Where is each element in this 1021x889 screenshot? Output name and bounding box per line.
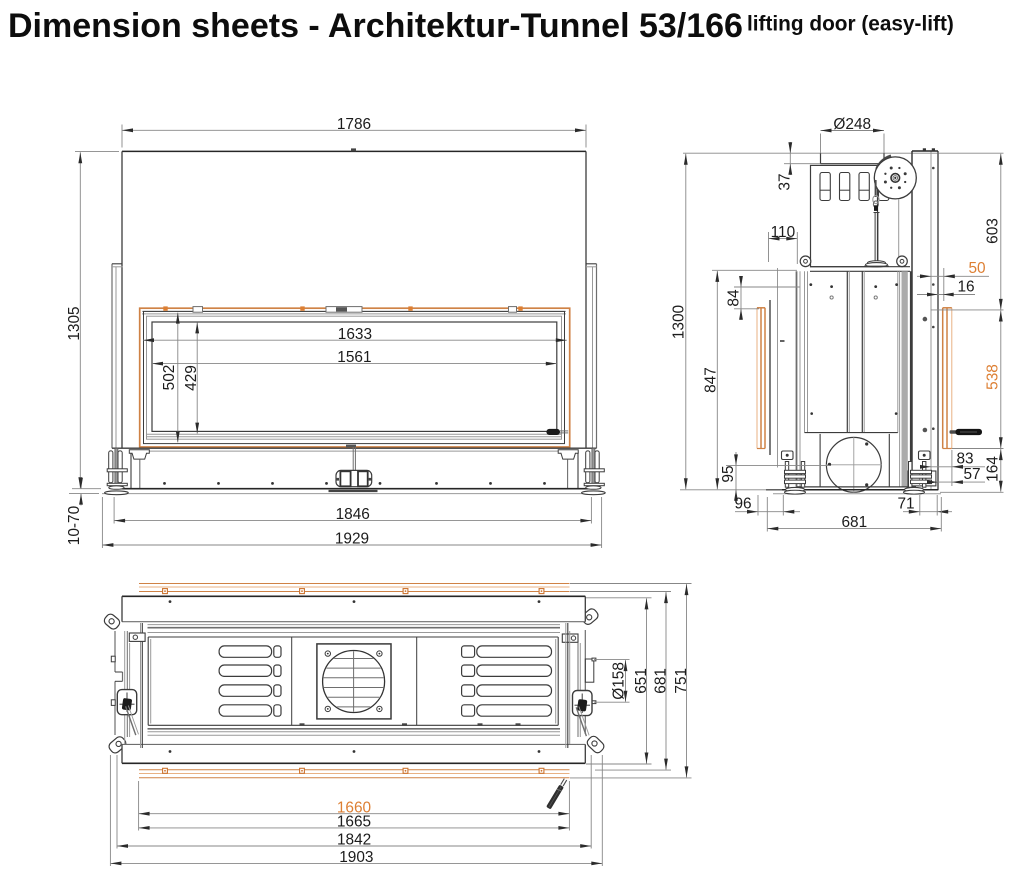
- svg-text:1929: 1929: [335, 531, 369, 548]
- svg-text:84: 84: [726, 289, 743, 307]
- svg-text:1305: 1305: [66, 306, 83, 340]
- svg-text:847: 847: [703, 367, 720, 393]
- svg-text:83: 83: [956, 450, 973, 467]
- svg-text:651: 651: [633, 668, 650, 694]
- svg-text:50: 50: [968, 260, 985, 277]
- svg-text:1842: 1842: [337, 832, 371, 849]
- svg-text:681: 681: [841, 514, 867, 531]
- svg-text:603: 603: [984, 218, 1001, 244]
- svg-text:1665: 1665: [337, 814, 371, 831]
- svg-text:1903: 1903: [339, 849, 373, 866]
- svg-text:95: 95: [720, 465, 737, 482]
- svg-text:429: 429: [183, 365, 200, 391]
- svg-text:538: 538: [984, 364, 1001, 390]
- svg-text:lifting door (easy-lift): lifting door (easy-lift): [747, 13, 954, 36]
- svg-text:37: 37: [777, 173, 794, 190]
- svg-text:681: 681: [653, 668, 670, 694]
- svg-text:164: 164: [984, 456, 1001, 482]
- svg-text:1561: 1561: [337, 349, 371, 366]
- svg-text:10-70: 10-70: [66, 506, 83, 545]
- svg-text:Dimension sheets - Architektur: Dimension sheets - Architektur-Tunnel 53…: [8, 7, 743, 45]
- svg-text:1786: 1786: [337, 116, 371, 133]
- svg-text:Ø158: Ø158: [611, 662, 628, 700]
- svg-text:96: 96: [734, 495, 751, 512]
- svg-text:502: 502: [161, 365, 178, 391]
- svg-text:71: 71: [897, 495, 914, 512]
- svg-text:751: 751: [673, 668, 690, 694]
- svg-text:1300: 1300: [671, 305, 688, 339]
- svg-text:1633: 1633: [338, 326, 372, 343]
- svg-text:1846: 1846: [336, 506, 370, 523]
- svg-text:57: 57: [963, 466, 980, 483]
- svg-text:110: 110: [771, 224, 796, 241]
- svg-text:16: 16: [957, 278, 974, 295]
- svg-text:Ø248: Ø248: [833, 116, 871, 133]
